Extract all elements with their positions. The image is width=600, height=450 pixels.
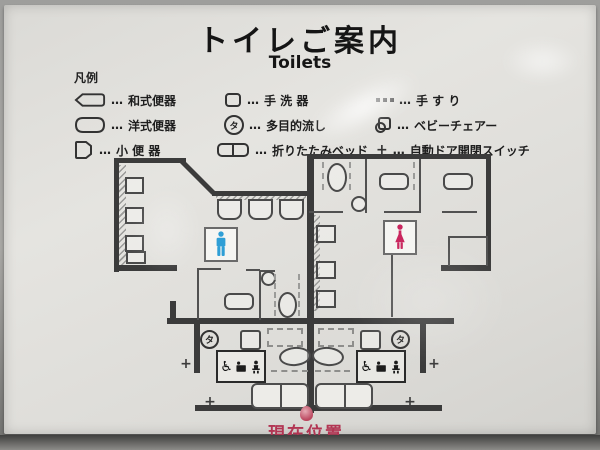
hand-basin-icon	[224, 92, 242, 108]
wheelchair-icon: ♿	[360, 360, 373, 374]
handrail-icon	[274, 274, 276, 316]
wall-segment	[307, 154, 491, 159]
multipurpose-toilet-signbox: ♿	[216, 350, 266, 383]
wash-basin-icon	[316, 225, 336, 243]
wash-basin-icon	[126, 251, 146, 264]
squat-toilet-icon	[443, 173, 473, 190]
legend-item-baby-chair: … ベビーチェアー	[374, 116, 497, 134]
squat-toilet-icon	[379, 173, 409, 190]
door-switch-icon: +	[178, 356, 194, 372]
wall-segment	[194, 324, 200, 373]
urinal-icon	[125, 207, 144, 224]
baby-chair-icon	[374, 116, 392, 134]
legend-heading: 凡例	[74, 69, 98, 86]
legend-label: 手 す り	[416, 92, 460, 109]
counter-edge	[271, 370, 308, 372]
photo-background: トイレご案内 Toilets 凡例 … 和式便器 … 洋式便器 … 小 便 器	[0, 0, 600, 450]
urinal-icon	[125, 177, 144, 194]
sign-bottom-edge	[0, 435, 600, 450]
legend-item-urinal: … 小 便 器	[74, 141, 160, 159]
handrail-icon	[298, 274, 300, 316]
wall-segment	[307, 154, 314, 413]
baby-changing-icon	[235, 360, 248, 374]
corner-sink-icon	[351, 196, 367, 212]
legend-dots: …	[247, 95, 259, 105]
stall-partition	[419, 159, 421, 213]
wall-segment	[167, 318, 454, 324]
counter-outline	[267, 328, 303, 347]
wheelchair-icon: ♿	[220, 360, 233, 374]
stall-partition	[246, 269, 260, 271]
western-toilet-icon	[327, 163, 347, 192]
folding-bed-icon	[251, 383, 309, 409]
wash-basin-icon	[240, 330, 261, 350]
men-pictogram-icon	[214, 231, 228, 258]
wall-segment	[178, 158, 215, 195]
baby-chair-icon	[390, 360, 402, 374]
urinal-icon	[74, 140, 94, 160]
counter-outline	[318, 328, 354, 347]
legend-dots: …	[111, 120, 123, 130]
door-switch-icon: +	[402, 394, 418, 410]
urinal-icon	[217, 199, 242, 220]
urinal-icon	[248, 199, 273, 220]
squat-toilet-icon	[224, 293, 254, 310]
legend-label: 多目的流し	[266, 117, 326, 134]
wall-segment	[114, 265, 177, 271]
squat-toilet-icon	[74, 92, 106, 108]
stall-partition	[309, 211, 343, 213]
legend-dots: …	[111, 95, 123, 105]
legend-item-hand-basin: … 手 洗 器	[224, 91, 308, 109]
storage-alcove	[448, 236, 488, 266]
legend-dots: …	[249, 120, 261, 130]
legend-dots: …	[399, 95, 411, 105]
legend-item-squat-toilet: … 和式便器	[74, 91, 176, 109]
mens-room-sign	[204, 227, 238, 262]
handrail-icon	[322, 162, 324, 190]
stall-partition	[442, 211, 477, 213]
urinal-icon	[279, 199, 304, 220]
multipurpose-sink-icon: タ	[224, 115, 244, 135]
handrail-icon	[376, 98, 394, 102]
stall-partition	[391, 255, 393, 317]
legend-item-multipurpose-sink: タ … 多目的流し	[224, 116, 326, 134]
stall-partition	[197, 268, 221, 270]
handrail-icon	[413, 162, 415, 190]
counter-edge	[315, 370, 350, 372]
multipurpose-sink-icon: タ	[200, 330, 219, 349]
door-switch-icon: +	[426, 356, 442, 372]
wash-basin-icon	[316, 261, 336, 279]
multipurpose-sink-icon: タ	[391, 330, 410, 349]
folding-bed-icon	[216, 142, 250, 158]
handrail-icon	[349, 162, 351, 190]
stall-partition	[197, 268, 199, 320]
western-toilet-icon	[278, 292, 297, 318]
western-toilet-icon	[74, 116, 106, 134]
toilet-guide-sign: トイレご案内 Toilets 凡例 … 和式便器 … 洋式便器 … 小 便 器	[4, 5, 596, 434]
baby-changing-icon	[375, 360, 388, 374]
legend-dots: …	[99, 145, 111, 155]
women-pictogram-icon	[393, 224, 407, 251]
stall-partition	[384, 211, 420, 213]
legend-label: 小 便 器	[116, 142, 160, 159]
legend-label: 手 洗 器	[264, 92, 308, 109]
legend-dots: …	[397, 120, 409, 130]
sink-bowl-icon	[311, 346, 345, 368]
legend-item-handrail: … 手 す り	[376, 91, 460, 109]
legend-label: 洋式便器	[128, 117, 176, 134]
legend-label: ベビーチェアー	[414, 117, 497, 134]
legend-dots: …	[255, 145, 267, 155]
womens-room-sign	[383, 220, 417, 255]
legend-item-western-toilet: … 洋式便器	[74, 116, 176, 134]
folding-bed-icon	[315, 383, 373, 409]
door-switch-icon: +	[202, 394, 218, 410]
legend-label: 和式便器	[128, 92, 176, 109]
wash-basin-icon	[360, 330, 381, 350]
baby-chair-icon	[250, 360, 262, 374]
wall-segment	[114, 158, 186, 163]
multipurpose-toilet-signbox: ♿	[356, 350, 406, 383]
wash-basin-icon	[316, 290, 336, 308]
urinal-icon	[125, 235, 144, 252]
